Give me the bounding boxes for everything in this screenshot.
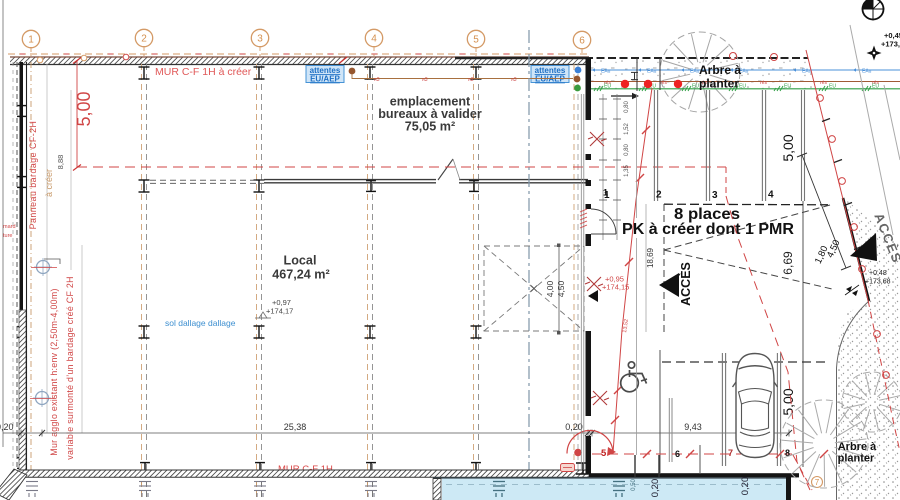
svg-text:+173,65: +173,65 (881, 40, 900, 49)
svg-text:rés: rés (760, 80, 767, 86)
svg-text:0,50: 0,50 (631, 479, 637, 491)
svg-text:5: 5 (601, 448, 607, 459)
svg-text:25,38: 25,38 (284, 422, 307, 432)
svg-text:4,50: 4,50 (556, 280, 566, 297)
svg-text:я3: я3 (468, 77, 474, 83)
svg-text:ACCÈS: ACCÈS (678, 262, 693, 306)
svg-text:0,20: 0,20 (650, 479, 661, 498)
svg-text:EU/AEP: EU/AEP (535, 75, 565, 84)
svg-text:variable surmonté d’un bardage: variable surmonté d’un bardage créé CF 2… (65, 276, 75, 459)
svg-text:я3: я3 (374, 77, 380, 83)
svg-text:1: 1 (603, 188, 608, 198)
svg-text:rés: rés (820, 80, 827, 86)
svg-text:6: 6 (675, 449, 680, 459)
svg-text:4,00: 4,00 (545, 280, 555, 297)
svg-text:0,20: 0,20 (565, 422, 583, 432)
svg-text:EU: EU (829, 84, 836, 90)
svg-text:6: 6 (579, 35, 585, 46)
svg-text:0,80: 0,80 (624, 101, 630, 113)
svg-text:+174,15: +174,15 (602, 283, 629, 292)
svg-text:+174,17: +174,17 (266, 307, 293, 316)
svg-text:5,00: 5,00 (780, 134, 796, 161)
svg-text:à créer: à créer (44, 169, 54, 197)
svg-text:0,20: 0,20 (740, 477, 751, 496)
svg-text:EAu: EAu (647, 69, 657, 75)
svg-text:8,88: 8,88 (56, 155, 65, 170)
svg-text:PK à créer dont 1 PMR: PK à créer dont 1 PMR (622, 221, 794, 238)
svg-text:Local: Local (284, 254, 317, 268)
svg-text:2: 2 (656, 190, 662, 201)
svg-text:я3: я3 (511, 77, 517, 83)
svg-text:EAu: EAu (862, 69, 872, 75)
svg-text:467,24 m²: 467,24 m² (272, 268, 329, 282)
svg-text:4: 4 (371, 33, 377, 44)
svg-text:7: 7 (728, 448, 733, 458)
svg-text:planter: planter (699, 77, 739, 91)
svg-text:MUR C-F 1H à créer: MUR C-F 1H à créer (155, 66, 252, 78)
svg-text:planter: planter (838, 453, 875, 465)
svg-text:EU: EU (784, 84, 791, 90)
svg-text:5: 5 (473, 34, 479, 45)
svg-text:mard: mard (3, 224, 16, 230)
svg-text:EU/AEP: EU/AEP (310, 75, 340, 84)
svg-text:0,80: 0,80 (624, 144, 630, 156)
svg-text:+0,48: +0,48 (869, 270, 887, 277)
svg-text:6,69: 6,69 (781, 251, 795, 275)
svg-text:ture: ture (3, 233, 12, 239)
svg-text:1,52: 1,52 (624, 123, 630, 135)
svg-text:Arbre à: Arbre à (699, 63, 741, 77)
svg-text:EU: EU (872, 84, 879, 90)
svg-text:EAu: EAu (601, 69, 611, 75)
svg-text:Panneau bardage CF-2H: Panneau bardage CF-2H (28, 121, 38, 230)
svg-text:1: 1 (28, 34, 34, 45)
svg-text:4: 4 (768, 190, 774, 201)
svg-text:EAu: EAu (802, 69, 812, 75)
svg-text:3: 3 (257, 33, 263, 44)
svg-text:0,20: 0,20 (0, 422, 14, 432)
svg-text:5,00: 5,00 (780, 388, 796, 415)
svg-text:5,00: 5,00 (74, 91, 94, 126)
svg-text:3: 3 (712, 190, 718, 201)
svg-text:9,43: 9,43 (684, 422, 702, 432)
svg-text:1,35: 1,35 (624, 165, 630, 177)
svg-text:+173,68: +173,68 (865, 279, 891, 286)
svg-text:75,05 m²: 75,05 m² (405, 120, 455, 134)
svg-text:Arbre à: Arbre à (838, 441, 877, 453)
svg-text:rés: rés (660, 80, 667, 86)
svg-text:Mur agglo existant h:env (2,50: Mur agglo existant h:env (2,50m-4,00m) (49, 288, 59, 455)
svg-text:2: 2 (141, 33, 147, 44)
svg-text:EU: EU (604, 84, 611, 90)
svg-text:7: 7 (815, 478, 820, 487)
svg-text:sol dallage dallage: sol dallage dallage (165, 318, 236, 328)
svg-text:EU: EU (739, 84, 746, 90)
svg-text:18,69: 18,69 (646, 247, 655, 268)
svg-text:я3: я3 (422, 77, 428, 83)
